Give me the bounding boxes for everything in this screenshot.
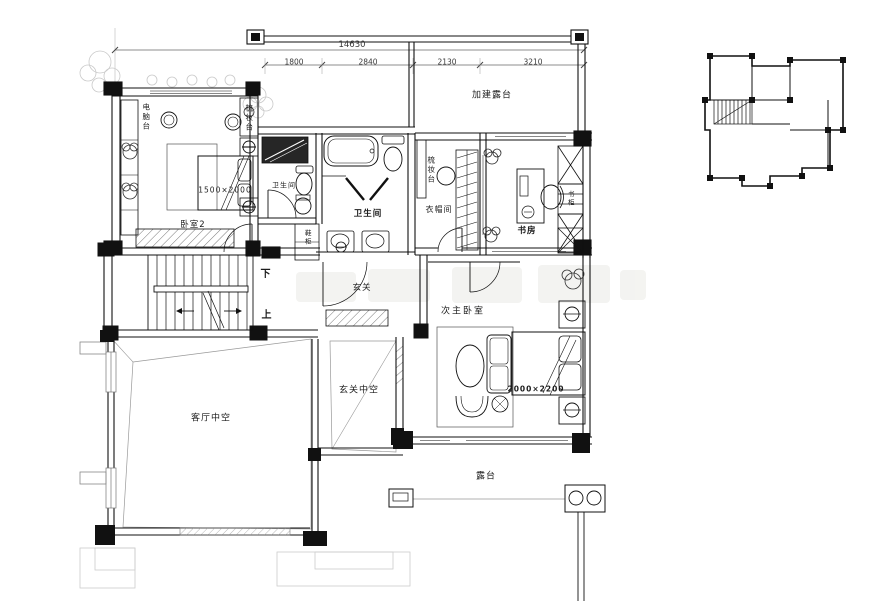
foyer-void — [318, 337, 404, 455]
label-second-master: 次主卧室 — [441, 308, 485, 317]
living-void — [80, 330, 327, 588]
label-added-terrace: 加建露台 — [472, 92, 512, 101]
label-terrace: 露台 — [476, 473, 496, 482]
label-foyer: 玄关 — [352, 284, 371, 293]
label-computer-desk: 电脑台 — [142, 103, 150, 132]
room-bathroom2 — [316, 133, 415, 255]
floorplan-canvas: 14630 1800 2840 2130 3210 加建露台 电脑台 梳妆台 卧… — [0, 0, 878, 614]
label-dresser-hall: 梳妆台 — [427, 156, 435, 185]
dim-seg-3: 2130 — [437, 58, 456, 66]
label-dresser-bedroom: 梳妆台 — [245, 104, 253, 133]
room-cloakroom — [415, 140, 480, 255]
label-stairs-up: 上 — [262, 311, 273, 321]
staircase — [98, 243, 320, 340]
label-study: 书房 — [517, 227, 536, 236]
label-bedroom2-bed-size: 1500×2000 — [198, 186, 251, 194]
label-bathroom2: 卫生间 — [354, 210, 383, 219]
label-living-void: 客厅中空 — [191, 415, 231, 424]
dim-seg-4: 3210 — [523, 58, 542, 66]
watermark — [296, 265, 646, 303]
dim-seg-2: 2840 — [358, 58, 377, 66]
room-second-master — [393, 228, 592, 453]
label-foyer-void: 玄关中空 — [339, 387, 379, 396]
room-study — [480, 131, 592, 258]
label-stairs-down: 下 — [261, 270, 272, 280]
dimension-lines — [112, 28, 587, 88]
label-bathroom1: 卫生间 — [272, 183, 296, 190]
added-terrace-walls — [247, 30, 588, 131]
label-cloakroom: 衣帽间 — [426, 206, 453, 214]
room-bathroom1 — [258, 133, 322, 260]
label-bedroom2: 卧室2 — [180, 221, 205, 230]
floorplan-drawing — [0, 0, 878, 614]
inset-stair-hatch — [714, 100, 752, 124]
label-master-bed-size: 2000×2200 — [507, 385, 564, 393]
label-shoe-cabinet: 鞋柜 — [304, 230, 311, 247]
label-bookcase: 书柜 — [567, 191, 574, 208]
inset-key-plan — [702, 53, 846, 189]
dim-seg-1: 1800 — [284, 58, 303, 66]
dim-total: 14630 — [338, 41, 365, 50]
